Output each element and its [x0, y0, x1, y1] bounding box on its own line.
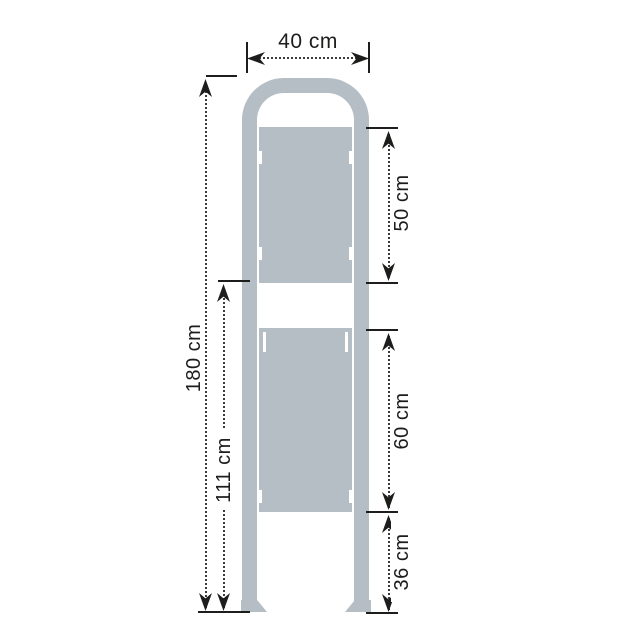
lower-panel: [259, 328, 352, 512]
panel-bracket-notch: [259, 151, 262, 164]
dimension-tick: [366, 329, 398, 331]
frame-left-tube: [242, 140, 257, 601]
dimension-label-upper-panel-bottom-height: 111 cm: [213, 430, 235, 510]
dimension-leader-line: [388, 134, 390, 278]
dimension-label-upper-panel-height: 50 cm: [391, 163, 413, 243]
dimension-leader-line: [388, 518, 390, 610]
dimension-tick: [366, 127, 398, 129]
panel-bracket-notch: [263, 332, 266, 352]
dimension-tick: [218, 280, 250, 282]
panel-bracket-notch: [259, 490, 262, 503]
ground-line-right: [366, 612, 398, 614]
dimension-label-total-height: 180 cm: [183, 318, 205, 398]
panel-bracket-notch: [259, 247, 262, 260]
dimension-diagram: 40 cm 180 cm 111 cm 50 cm 60 cm: [0, 0, 638, 637]
panel-bracket-notch: [349, 151, 352, 164]
dimension-tick: [366, 511, 398, 513]
panel-bracket-notch: [349, 247, 352, 260]
frame-right-tube: [354, 140, 369, 601]
panel-bracket-notch: [349, 490, 352, 503]
dimension-tick: [368, 42, 370, 73]
dimension-label-frame-width: 40 cm: [268, 31, 348, 53]
frame-right-foot: [345, 600, 371, 612]
dimension-label-ground-clearance: 36 cm: [391, 522, 413, 602]
dimension-leader-line: [388, 336, 390, 508]
dimension-tick: [246, 42, 248, 73]
dimension-leader-line: [205, 84, 207, 608]
dimension-leader-line: [252, 57, 364, 59]
dimension-tick: [366, 282, 398, 284]
upper-panel: [259, 127, 352, 283]
dimension-tick: [206, 75, 237, 77]
ground-line-left: [198, 611, 250, 613]
panel-bracket-notch: [345, 332, 348, 352]
dimension-label-lower-panel-height: 60 cm: [391, 381, 413, 461]
